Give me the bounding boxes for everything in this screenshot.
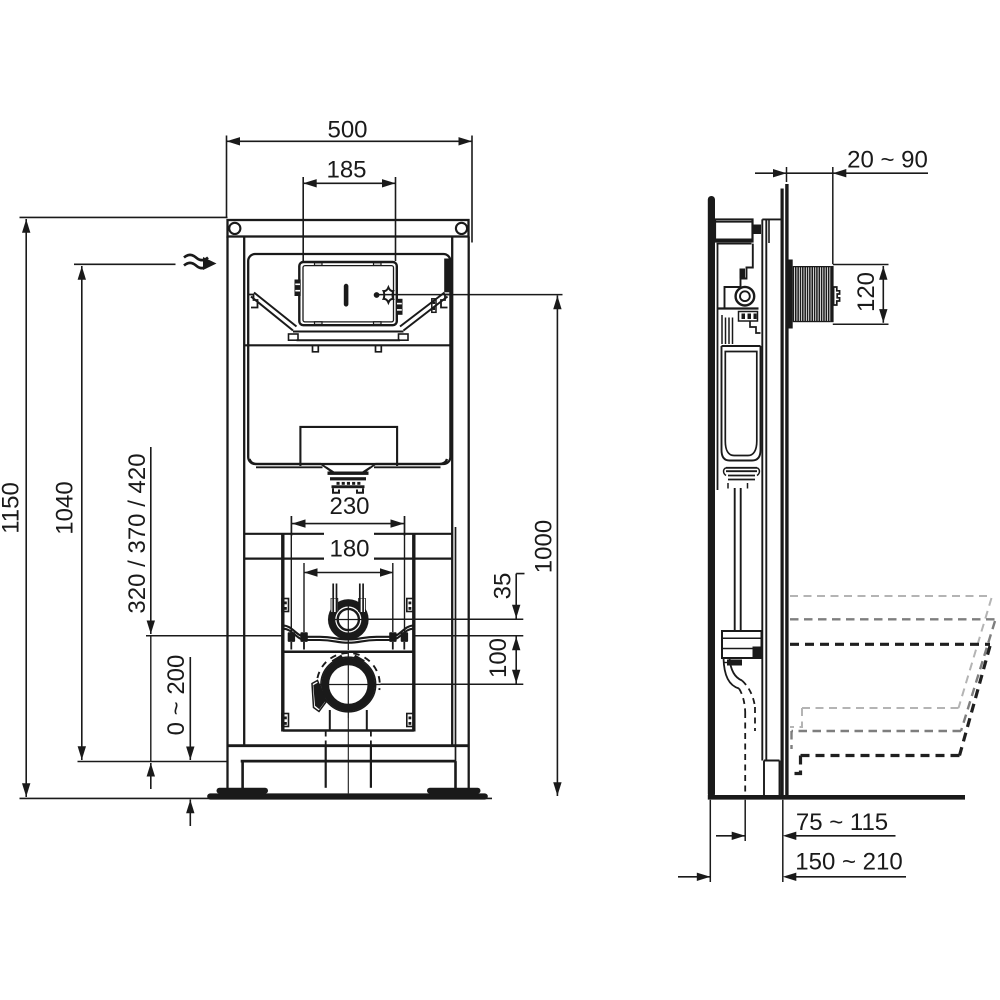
svg-text:150 ~ 210: 150 ~ 210 [795, 849, 902, 876]
svg-text:500: 500 [327, 117, 367, 144]
svg-text:120: 120 [853, 272, 880, 312]
svg-text:100: 100 [485, 638, 512, 678]
svg-text:1000: 1000 [531, 520, 558, 573]
svg-text:230: 230 [329, 493, 369, 520]
svg-text:1040: 1040 [52, 481, 79, 534]
svg-text:1150: 1150 [0, 482, 25, 534]
svg-text:180: 180 [329, 536, 369, 563]
svg-text:35: 35 [490, 573, 517, 600]
svg-text:320 / 370 / 420: 320 / 370 / 420 [124, 453, 151, 613]
svg-text:185: 185 [326, 157, 366, 184]
svg-text:20 ~ 90: 20 ~ 90 [847, 147, 928, 174]
svg-text:75 ~ 115: 75 ~ 115 [796, 809, 888, 836]
svg-text:0 ~ 200: 0 ~ 200 [163, 655, 190, 736]
